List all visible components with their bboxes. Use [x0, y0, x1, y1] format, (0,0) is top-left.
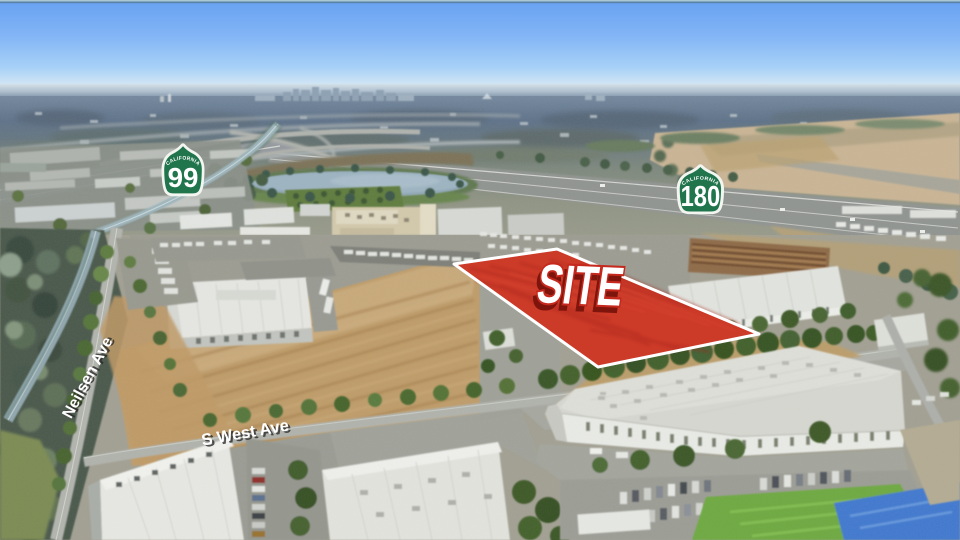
svg-text:180: 180 [681, 181, 721, 212]
svg-text:SITE: SITE [533, 254, 628, 319]
svg-text:99: 99 [168, 161, 199, 193]
